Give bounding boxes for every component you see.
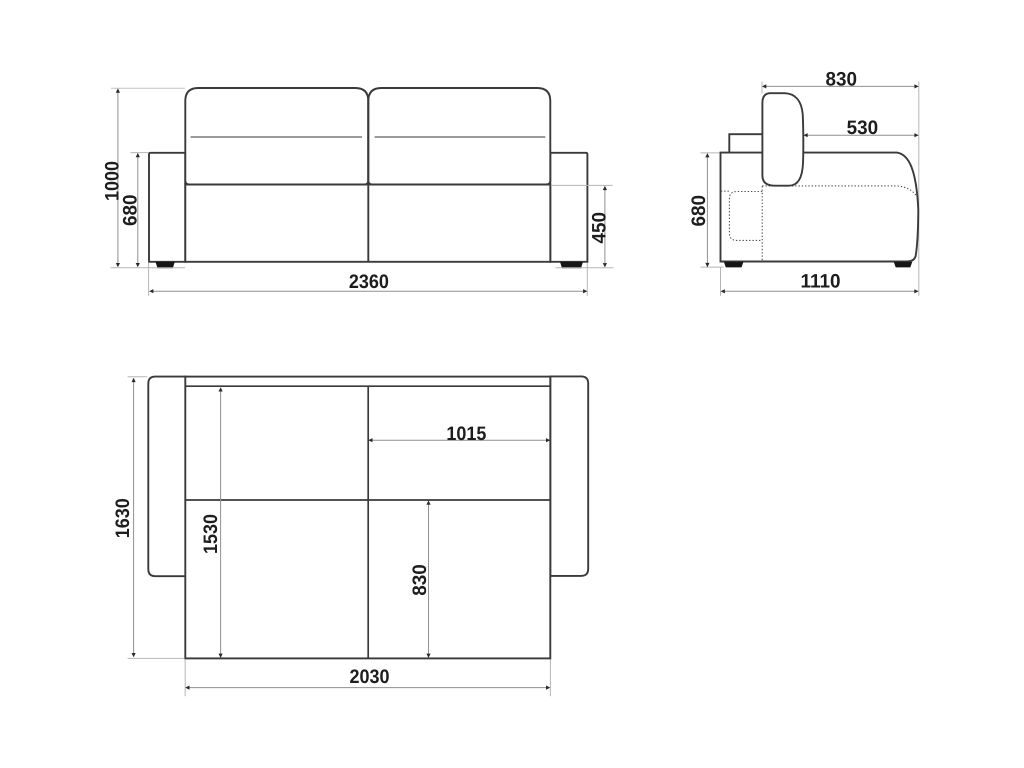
svg-text:1110: 1110: [801, 271, 841, 293]
svg-text:830: 830: [826, 68, 858, 90]
svg-text:530: 530: [847, 117, 879, 139]
svg-text:450: 450: [588, 212, 610, 244]
svg-text:830: 830: [409, 564, 431, 596]
svg-text:1015: 1015: [446, 423, 486, 445]
svg-text:1530: 1530: [200, 514, 222, 554]
svg-text:2030: 2030: [350, 666, 390, 688]
svg-text:680: 680: [119, 194, 141, 226]
svg-text:1630: 1630: [112, 498, 134, 538]
svg-text:680: 680: [688, 195, 710, 227]
svg-text:2360: 2360: [349, 271, 389, 293]
